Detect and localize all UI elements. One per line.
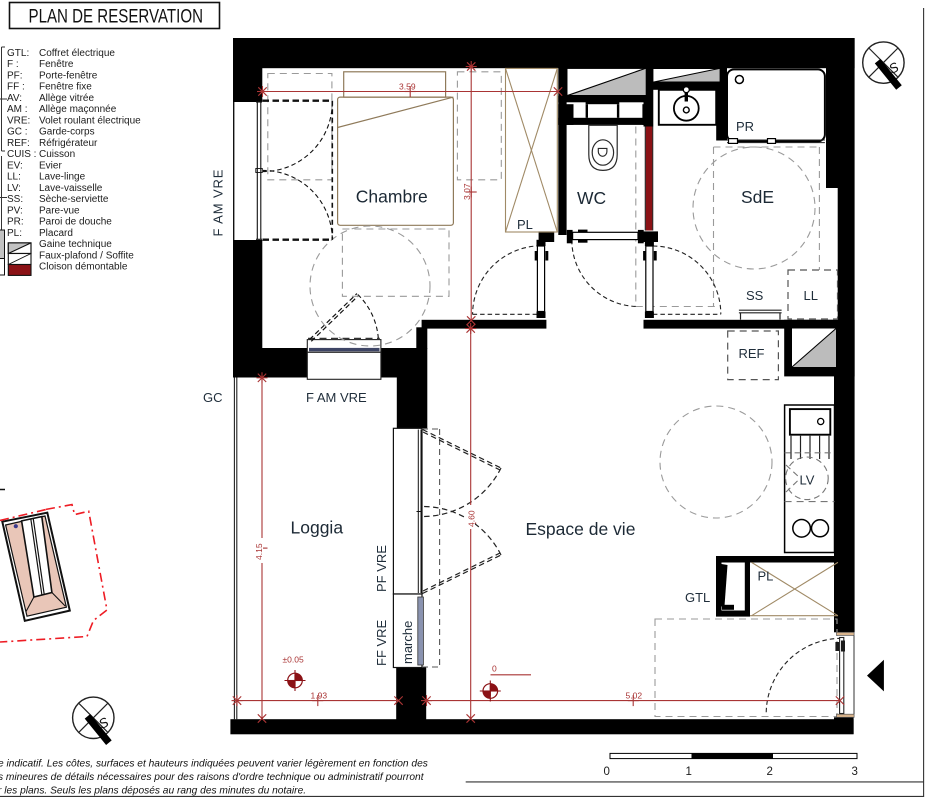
svg-text:marche: marche [400,621,415,664]
svg-text:Garde-corps: Garde-corps [39,127,95,138]
svg-text:s mineures de détails nécessai: s mineures de détails nécessaires pour d… [0,772,425,783]
svg-text:Espace de vie: Espace de vie [526,519,636,539]
svg-text:Evier: Evier [39,160,62,171]
svg-text:EV:: EV: [7,160,23,171]
svg-text:3.59: 3.59 [399,82,416,92]
svg-text:Allège maçonnée: Allège maçonnée [39,104,117,115]
svg-text:GTL: GTL [685,590,710,605]
svg-text:SdE: SdE [741,187,774,207]
svg-text:LL: LL [804,288,818,303]
svg-text:r les plans. Seuls les plans d: r les plans. Seuls les plans déposés au … [0,786,306,797]
svg-text:Faux-plafond / Soffite: Faux-plafond / Soffite [39,250,134,261]
svg-text:FF VRE: FF VRE [374,619,389,666]
svg-text:PL:: PL: [7,228,22,239]
svg-text:Porte-fenêtre: Porte-fenêtre [39,70,98,81]
svg-text:FF :: FF : [7,82,25,93]
svg-text:Fenêtre: Fenêtre [39,59,74,70]
svg-text:SS: SS [746,288,764,303]
svg-text:VRE:: VRE: [7,115,30,126]
svg-text:Paroi de douche: Paroi de douche [39,217,112,228]
svg-text:F AM VRE: F AM VRE [306,390,367,405]
svg-text:2: 2 [767,766,773,778]
svg-text:PF:: PF: [7,70,23,81]
svg-text:LV: LV [800,473,815,488]
svg-text:Fenêtre fixe: Fenêtre fixe [39,82,92,93]
svg-text:3.07: 3.07 [462,183,472,200]
svg-text:PL: PL [758,569,774,584]
svg-text:PV:: PV: [7,205,23,216]
svg-text:Chambre: Chambre [356,187,428,207]
svg-text:1.93: 1.93 [311,691,328,701]
svg-text:Loggia: Loggia [291,518,344,538]
svg-text:AV:: AV: [7,93,22,104]
svg-text:GC :: GC : [7,127,28,138]
svg-text:Volet roulant électrique: Volet roulant électrique [39,115,141,126]
svg-text:REF: REF [739,346,765,361]
svg-text:PR:: PR: [7,217,24,228]
svg-text:CUIS :: CUIS : [7,149,36,160]
svg-text:LL:: LL: [7,172,21,183]
svg-text:PF VRE: PF VRE [374,545,389,592]
svg-text:PL: PL [517,217,533,232]
svg-text:REF:: REF: [7,138,30,149]
svg-text:GTL:: GTL: [7,48,29,59]
svg-text:4.15: 4.15 [254,543,264,560]
svg-text:Cuisson: Cuisson [39,149,75,160]
svg-text:PLAN DE RESERVATION: PLAN DE RESERVATION [29,5,204,27]
svg-text:0: 0 [604,766,610,778]
svg-text:Coffret électrique: Coffret électrique [39,48,115,59]
svg-text:Sèche-serviette: Sèche-serviette [39,194,109,205]
svg-text:1: 1 [686,766,692,778]
svg-text:LV:: LV: [7,183,21,194]
svg-text:Gaine technique: Gaine technique [39,239,112,250]
svg-text:WC: WC [577,188,606,208]
svg-text:Lave-linge: Lave-linge [39,172,86,183]
svg-text:F :: F : [7,59,19,70]
svg-text:e indicatif. Les côtes, surfac: e indicatif. Les côtes, surfaces et haut… [0,759,428,770]
svg-text:5.02: 5.02 [626,691,643,701]
svg-text:Allège vitrée: Allège vitrée [39,93,94,104]
svg-text:SS:: SS: [7,194,23,205]
svg-text:Réfrigérateur: Réfrigérateur [39,138,98,149]
svg-text:4.60: 4.60 [467,510,477,527]
svg-text:3: 3 [852,766,858,778]
svg-text:0: 0 [492,664,497,674]
svg-text:Pare-vue: Pare-vue [39,205,80,216]
svg-text:Placard: Placard [39,228,73,239]
svg-text:±0.05: ±0.05 [283,655,304,665]
svg-text:Cloison démontable: Cloison démontable [39,262,128,273]
svg-text:Lave-vaisselle: Lave-vaisselle [39,183,103,194]
svg-text:AM :: AM : [7,104,28,115]
svg-text:F AM VRE: F AM VRE [211,169,226,237]
svg-text:GC: GC [203,390,223,405]
svg-text:PR: PR [736,119,754,134]
